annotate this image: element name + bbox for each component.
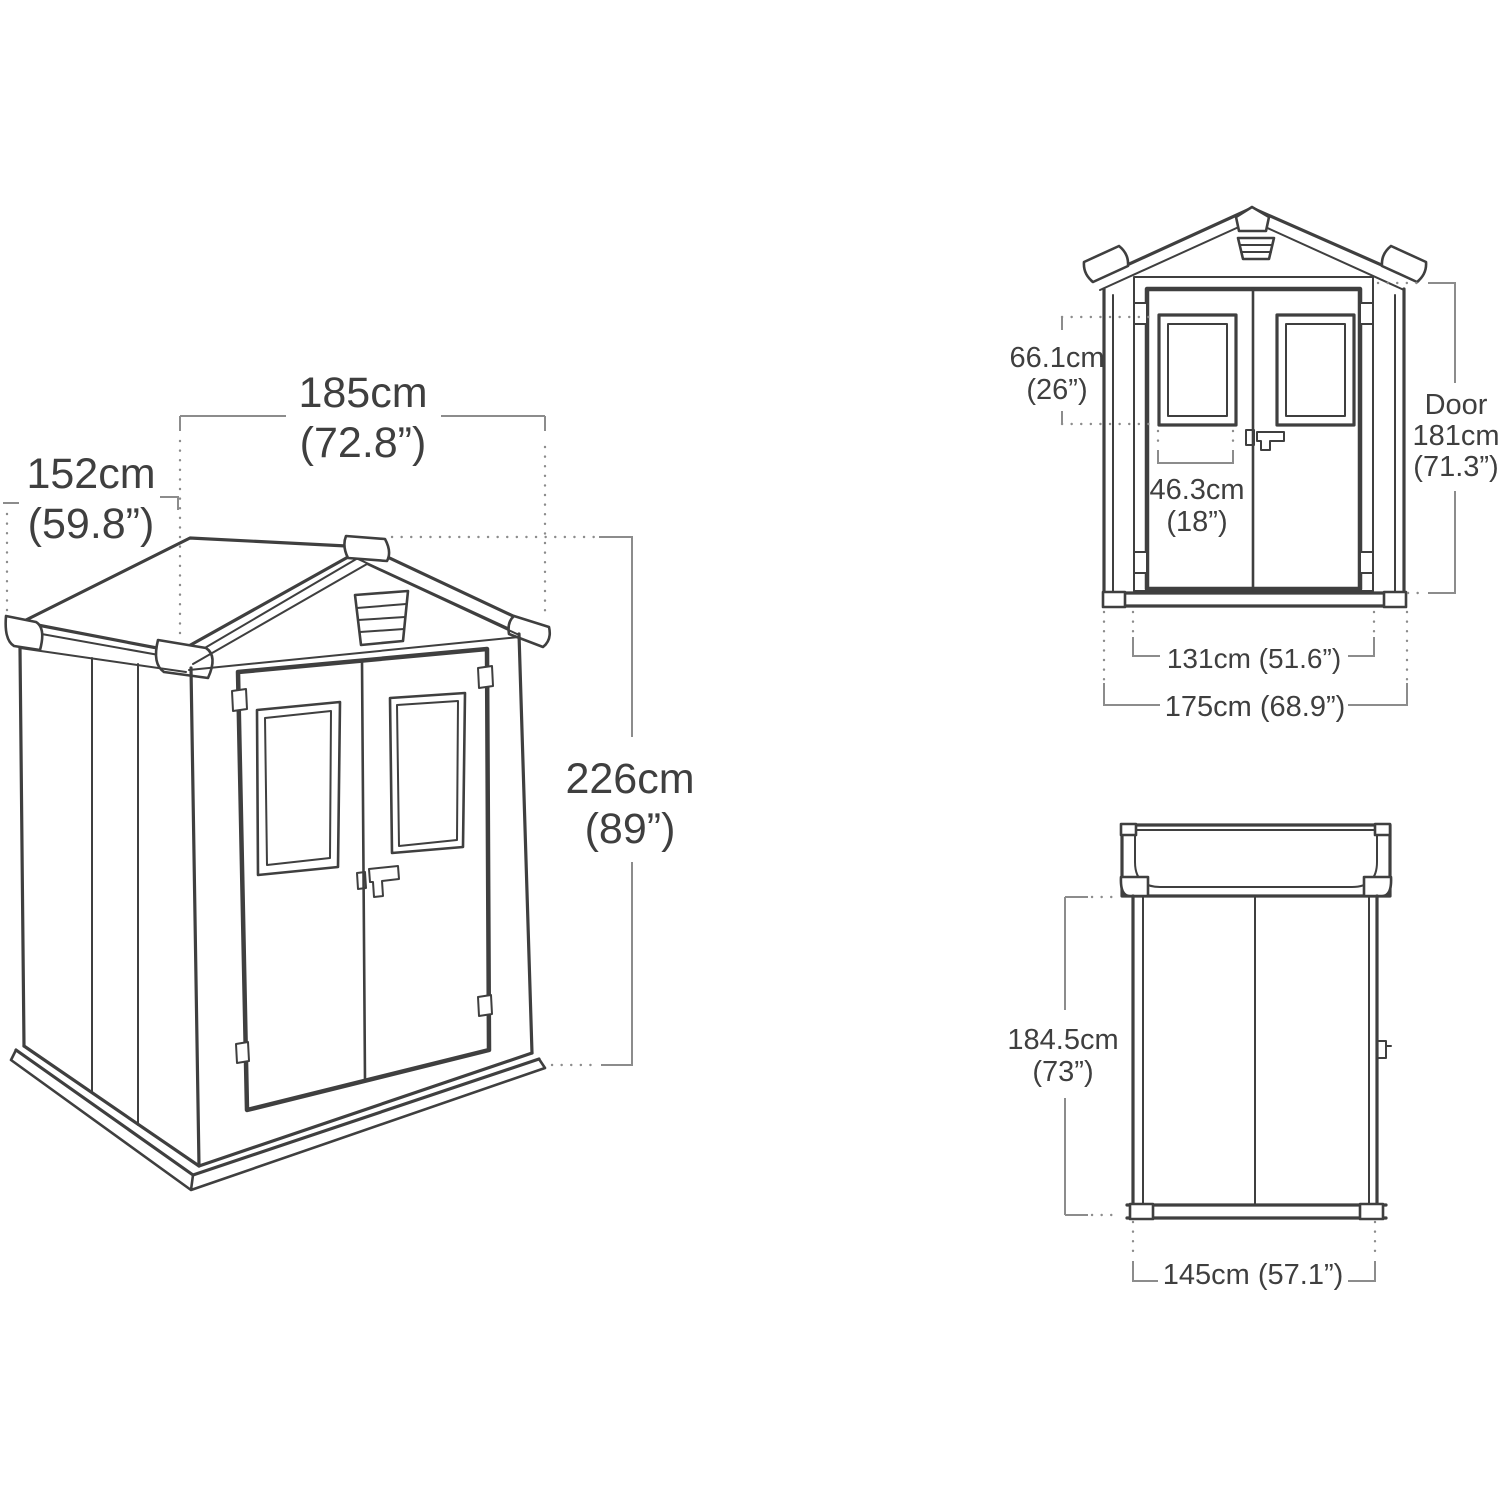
dim-width-imperial: (72.8”) bbox=[298, 418, 427, 468]
dim-overall-width-label: 175cm (68.9”) bbox=[1165, 691, 1346, 723]
dim-width-metric: 185cm bbox=[298, 368, 427, 418]
dim-side-height-imperial: (73”) bbox=[1007, 1056, 1118, 1088]
dim-window-height-metric: 66.1cm bbox=[1009, 342, 1104, 374]
dim-side-width-text: 145cm (57.1”) bbox=[1163, 1259, 1344, 1291]
front-view bbox=[1062, 207, 1455, 705]
dim-side-width-label: 145cm (57.1”) bbox=[1163, 1259, 1344, 1291]
shed-dimension-diagram: 185cm (72.8”) 152cm (59.8”) 226cm (89”) … bbox=[0, 0, 1500, 1500]
dim-side-height-label: 184.5cm (73”) bbox=[1007, 1024, 1118, 1088]
dim-window-width-label: 46.3cm (18”) bbox=[1149, 474, 1244, 538]
dim-height-metric: 226cm bbox=[565, 754, 694, 804]
dim-door-height-imperial: (71.3”) bbox=[1412, 452, 1499, 483]
dimension-lines-side bbox=[1065, 897, 1375, 1281]
shed-3d-drawing bbox=[6, 536, 550, 1190]
dim-door-width-label: 131cm (51.6”) bbox=[1167, 643, 1341, 675]
dim-width-label: 185cm (72.8”) bbox=[298, 368, 427, 468]
dim-door-height-label: Door 181cm (71.3”) bbox=[1412, 390, 1499, 483]
dim-door-height-metric: 181cm bbox=[1412, 421, 1499, 452]
dim-door-width-text: 131cm (51.6”) bbox=[1167, 643, 1341, 675]
shed-front-drawing bbox=[1084, 207, 1426, 607]
dim-window-height-label: 66.1cm (26”) bbox=[1009, 342, 1104, 406]
dimension-lines-front bbox=[1062, 283, 1455, 705]
dim-door-height-prefix: Door bbox=[1412, 390, 1499, 421]
dim-depth-metric: 152cm bbox=[26, 449, 155, 499]
shed-side-drawing bbox=[1121, 824, 1391, 1219]
dim-depth-label: 152cm (59.8”) bbox=[26, 449, 155, 549]
dim-side-height-metric: 184.5cm bbox=[1007, 1024, 1118, 1056]
dim-window-width-imperial: (18”) bbox=[1149, 506, 1244, 538]
dim-window-width-metric: 46.3cm bbox=[1149, 474, 1244, 506]
dim-overall-width-text: 175cm (68.9”) bbox=[1165, 691, 1346, 723]
dim-window-height-imperial: (26”) bbox=[1009, 374, 1104, 406]
dim-height-label: 226cm (89”) bbox=[565, 754, 694, 854]
dim-depth-imperial: (59.8”) bbox=[26, 499, 155, 549]
dim-height-imperial: (89”) bbox=[565, 804, 694, 854]
